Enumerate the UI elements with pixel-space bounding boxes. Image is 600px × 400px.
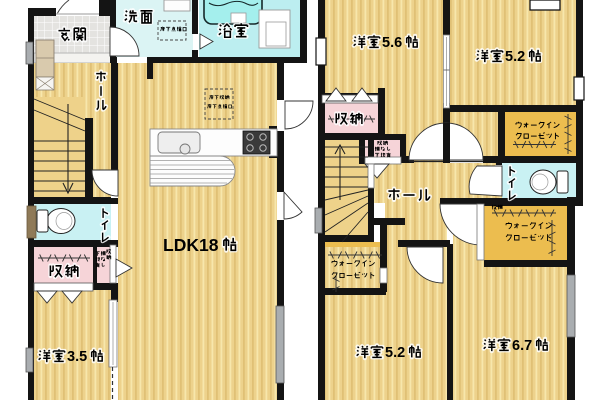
svg-text:LDK18: LDK18 xyxy=(163,235,219,255)
svg-text:5.2: 5.2 xyxy=(385,345,405,361)
svg-text:3.5: 3.5 xyxy=(67,349,87,365)
svg-text:5.6: 5.6 xyxy=(382,35,402,51)
svg-text:6.7: 6.7 xyxy=(512,338,532,354)
svg-text:5.2: 5.2 xyxy=(505,49,525,65)
